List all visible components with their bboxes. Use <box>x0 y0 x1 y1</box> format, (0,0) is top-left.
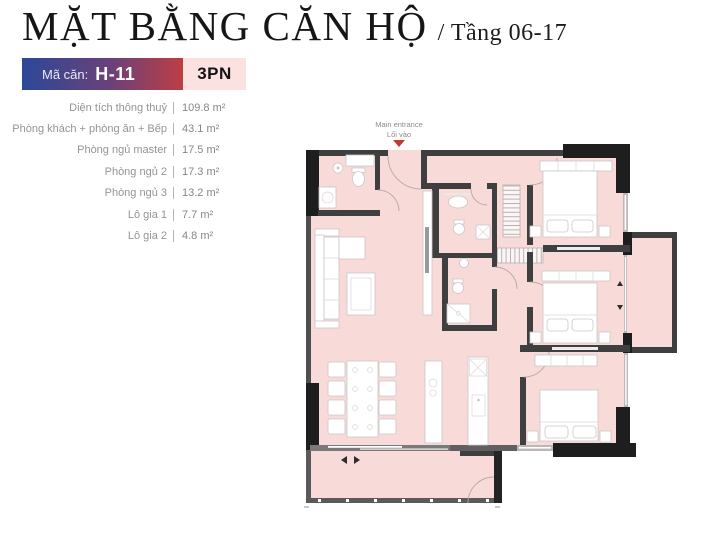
area-value: 43.1 m² <box>182 123 270 135</box>
sofa-chaise <box>339 237 365 259</box>
area-label: Phòng khách + phòng ăn + Bếp <box>0 123 167 135</box>
chair <box>328 419 345 434</box>
sliding-door <box>310 445 450 451</box>
unit-code-value: H-11 <box>95 64 135 85</box>
area-value: 4.8 m² <box>182 230 270 242</box>
separator <box>173 102 174 114</box>
separator <box>173 144 174 156</box>
unit-code-label: Mã căn: <box>42 67 88 82</box>
tv-icon <box>425 227 429 273</box>
sink-icon <box>460 259 469 268</box>
area-value: 7.7 m² <box>182 209 270 221</box>
floor-plan-svg: Main entrance Lối vào <box>290 115 727 543</box>
area-label: Phòng ngủ 3 <box>0 187 167 199</box>
unit-code-badge: Mã căn: H-11 <box>22 58 183 90</box>
unit-badge: Mã căn: H-11 3PN <box>22 58 246 90</box>
pillow <box>573 426 596 438</box>
separator <box>173 230 174 242</box>
entrance-arrow-icon <box>393 140 405 147</box>
floor-plan-drawing: Main entrance Lối vào <box>290 115 727 543</box>
sofa-seat <box>324 237 339 319</box>
entrance-label-vi: Lối vào <box>387 130 411 139</box>
area-row: Lô gia 2 4.8 m² <box>0 225 270 246</box>
nightstand <box>530 226 541 237</box>
chair <box>379 381 396 396</box>
nightstand <box>530 332 541 343</box>
dining-table <box>347 361 378 437</box>
kitchen-island <box>425 361 442 443</box>
chair <box>379 419 396 434</box>
area-row: Diện tích thông thuỷ 109.8 m² <box>0 97 270 118</box>
nightstand <box>527 431 538 442</box>
pillow <box>547 319 568 331</box>
wardrobe <box>535 355 597 366</box>
area-label: Phòng ngủ master <box>0 144 167 156</box>
area-value: 13.2 m² <box>182 187 270 199</box>
pillow <box>545 426 568 438</box>
toilet-icon <box>353 172 365 187</box>
separator <box>173 209 174 221</box>
area-value: 17.3 m² <box>182 166 270 178</box>
area-label: Lô gia 2 <box>0 230 167 242</box>
chair <box>328 400 345 415</box>
area-value: 109.8 m² <box>182 102 270 114</box>
chair <box>328 381 345 396</box>
unit-type-badge: 3PN <box>183 58 246 90</box>
nightstand <box>599 226 610 237</box>
nightstand <box>599 332 610 343</box>
area-row: Phòng ngủ 3 13.2 m² <box>0 183 270 204</box>
sofa-back <box>315 235 324 321</box>
area-row: Phòng khách + phòng ăn + Bếp 43.1 m² <box>0 118 270 139</box>
area-row: Phòng ngủ 2 17.3 m² <box>0 161 270 182</box>
vanity <box>346 155 374 166</box>
separator <box>173 166 174 178</box>
area-label: Diện tích thông thuỷ <box>0 102 167 114</box>
page-title-floors: / Tầng 06-17 <box>438 20 568 47</box>
separator <box>173 187 174 199</box>
floor-plan-sheet: MẶT BẰNG CĂN HỘ / Tầng 06-17 Mã căn: H-1… <box>0 0 727 543</box>
bed <box>543 283 597 343</box>
pillow <box>572 220 593 232</box>
separator <box>173 123 174 135</box>
chair <box>328 362 345 377</box>
toilet-icon <box>454 224 465 235</box>
entrance-label-en: Main entrance <box>375 120 423 129</box>
entrance-label: Main entrance Lối vào <box>375 120 423 147</box>
toilet-icon <box>453 283 464 294</box>
area-row: Lô gia 1 7.7 m² <box>0 204 270 225</box>
area-table: Diện tích thông thuỷ 109.8 m² Phòng khác… <box>0 97 270 247</box>
area-label: Lô gia 1 <box>0 209 167 221</box>
pillow <box>572 319 593 331</box>
page-title: MẶT BẰNG CĂN HỘ / Tầng 06-17 <box>22 0 567 52</box>
pillow <box>547 220 568 232</box>
sofa-armrest <box>315 321 339 328</box>
page-title-main: MẶT BẰNG CĂN HỘ <box>22 0 428 52</box>
washer-icon <box>319 187 336 208</box>
area-value: 17.5 m² <box>182 144 270 156</box>
chair <box>379 400 396 415</box>
area-row: Phòng ngủ master 17.5 m² <box>0 140 270 161</box>
nightstand <box>600 431 611 442</box>
chair <box>379 362 396 377</box>
area-label: Phòng ngủ 2 <box>0 166 167 178</box>
sink-icon <box>449 196 468 208</box>
